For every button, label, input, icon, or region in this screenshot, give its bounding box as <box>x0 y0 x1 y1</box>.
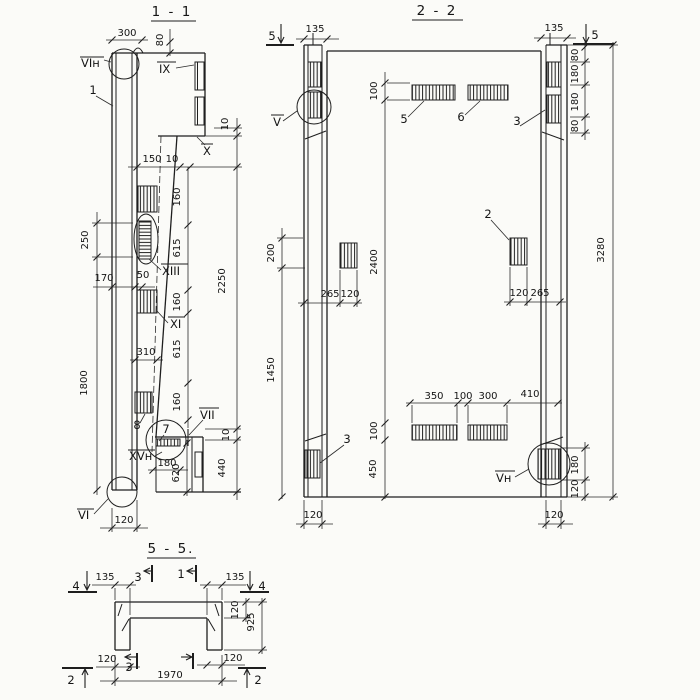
label-item-3-right: 3 <box>513 114 520 128</box>
dim-10-step: 10 <box>220 118 231 131</box>
dim-200: 200 <box>266 243 277 262</box>
cut-marker-5-right: 5 <box>573 24 614 44</box>
embedded-plate-3 <box>547 95 561 123</box>
cut-marker-3-top: 3 <box>134 565 152 584</box>
dim-410: 410 <box>520 389 539 400</box>
dim-180-b: 180 <box>570 92 581 111</box>
embedded-plate-v <box>308 92 321 118</box>
cut-label-2: 2 <box>254 673 261 687</box>
label-item-5: 5 <box>400 112 407 126</box>
embedded-plate <box>137 290 157 313</box>
dim-300: 300 <box>117 28 136 39</box>
embedded-plate <box>547 62 561 87</box>
dim-50: 50 <box>137 270 150 281</box>
dim-180-a: 180 <box>570 64 581 83</box>
dim-120: 120 <box>114 515 133 526</box>
dim-100-bottom: 100 <box>369 421 380 440</box>
section-2-2-title: 2 - 2 <box>417 3 458 19</box>
dim-615-a: 615 <box>172 238 183 257</box>
dim-265-right: 265 <box>530 288 549 299</box>
edge-slot-x <box>195 97 204 125</box>
dim-80: 80 <box>155 34 166 47</box>
dim-300: 300 <box>478 391 497 402</box>
embedded-plate-5 <box>412 85 455 100</box>
anchor-strip-xiii <box>139 221 151 259</box>
dim-160-c: 160 <box>172 392 183 411</box>
cut-label-1: 1 <box>177 567 184 581</box>
embedded-plate-v-n <box>538 449 560 479</box>
dim-3280: 3280 <box>596 237 607 262</box>
dim-310: 310 <box>136 347 155 358</box>
section-5-5: 5 - 5. 4 4 <box>62 541 269 688</box>
label-item-3-left: 3 <box>343 432 350 446</box>
dim-170: 170 <box>94 273 113 284</box>
dim-100-top: 100 <box>369 81 380 100</box>
dim-2400: 2400 <box>369 249 380 274</box>
label-item-2: 2 <box>484 207 491 221</box>
embedded-plate-8 <box>135 392 152 413</box>
cut-label-3: 3 <box>134 570 141 584</box>
label-vi-n: VIн <box>81 56 100 70</box>
embedded-plate-6 <box>468 85 508 100</box>
cut-marker-3-bottom: 3 <box>125 653 137 674</box>
dim-350: 350 <box>424 391 443 402</box>
dim-120-bottom-right: 120 <box>544 510 563 521</box>
lifting-loop <box>133 48 143 53</box>
dim-120-br: 120 <box>570 479 581 498</box>
section-5-5-title: 5 - 5. <box>148 541 195 557</box>
cut-marker-1-bottom <box>181 653 193 669</box>
label-v-n: Vн <box>496 471 511 485</box>
dim-1970: 1970 <box>157 670 182 681</box>
embedded-plate <box>468 425 507 440</box>
dim-120-left: 120 <box>340 289 359 300</box>
cut-marker-2-right: 2 <box>238 668 266 688</box>
section-1-1: 1 - 1 <box>77 4 242 532</box>
dim-1800: 1800 <box>79 370 90 395</box>
embedded-plate-3 <box>305 450 320 478</box>
cut-label-4: 4 <box>258 579 265 593</box>
dim-150: 150 <box>142 154 161 165</box>
dim-120-bottom-left: 120 <box>97 654 116 665</box>
dim-135-right: 135 <box>225 572 244 583</box>
cut-marker-5-left: 5 <box>266 24 294 45</box>
embedded-plate <box>138 186 157 212</box>
dim-135-right: 135 <box>544 23 563 34</box>
dim-120-bottom-left: 120 <box>303 510 322 521</box>
dim-120-bottom-right: 120 <box>223 653 242 664</box>
cut-marker-2-left: 2 <box>62 668 93 688</box>
dim-180: 180 <box>157 458 176 469</box>
dim-180-br: 180 <box>570 455 581 474</box>
embedded-plate-2 <box>510 238 527 265</box>
dim-2250: 2250 <box>217 268 228 293</box>
dim-80-a: 80 <box>570 49 581 62</box>
cut-label-5: 5 <box>268 29 275 43</box>
label-vi: VI <box>78 508 89 522</box>
label-ix: IX <box>159 62 170 76</box>
dim-10-weld: 10 <box>221 429 232 442</box>
corbel-slot <box>195 452 202 477</box>
dim-250: 250 <box>80 230 91 249</box>
dim-120-right: 120 <box>509 288 528 299</box>
section-2-2: 2 - 2 <box>266 3 618 529</box>
dim-80-b: 80 <box>570 120 581 133</box>
cut-label-5: 5 <box>591 28 598 42</box>
label-xi: XI <box>170 317 181 331</box>
label-v: V <box>273 115 281 129</box>
label-item-1: 1 <box>89 83 96 97</box>
dim-615-b: 615 <box>172 339 183 358</box>
label-x: X <box>203 144 211 158</box>
label-item-8: 8 <box>133 418 140 432</box>
cut-label-4: 4 <box>72 579 79 593</box>
label-item-6: 6 <box>457 110 464 124</box>
dim-160-b: 160 <box>172 292 183 311</box>
dim-440: 440 <box>217 458 228 477</box>
drawing-canvas: 1 - 1 <box>0 0 700 700</box>
label-xiii: XIII <box>162 264 180 278</box>
label-item-7: 7 <box>162 422 169 436</box>
dim-10: 10 <box>166 154 179 165</box>
label-vii: VII <box>200 408 215 422</box>
embedded-plate <box>308 62 321 87</box>
section-1-1-title: 1 - 1 <box>152 4 193 20</box>
dim-925: 925 <box>246 612 257 631</box>
cut-marker-1-top: 1 <box>177 565 196 582</box>
dim-120-slab: 120 <box>230 600 241 619</box>
dim-265-left: 265 <box>320 289 339 300</box>
embedded-plate <box>340 243 357 268</box>
drawing-sheet: 1 - 1 <box>0 0 700 700</box>
dim-135-left: 135 <box>95 572 114 583</box>
dim-1450: 1450 <box>266 357 277 382</box>
dim-450: 450 <box>368 459 379 478</box>
detail-circle-vi <box>107 477 137 507</box>
cut-label-2: 2 <box>67 673 74 687</box>
edge-slot-ix <box>195 62 204 90</box>
cut-marker-4-left: 4 <box>68 571 97 593</box>
label-xv-n: XVн <box>129 449 152 463</box>
dim-135-left: 135 <box>305 24 324 35</box>
embedded-plate <box>412 425 457 440</box>
section-5-5-outline <box>115 602 222 650</box>
dim-160-a: 160 <box>172 187 183 206</box>
dim-100-mid: 100 <box>453 391 472 402</box>
